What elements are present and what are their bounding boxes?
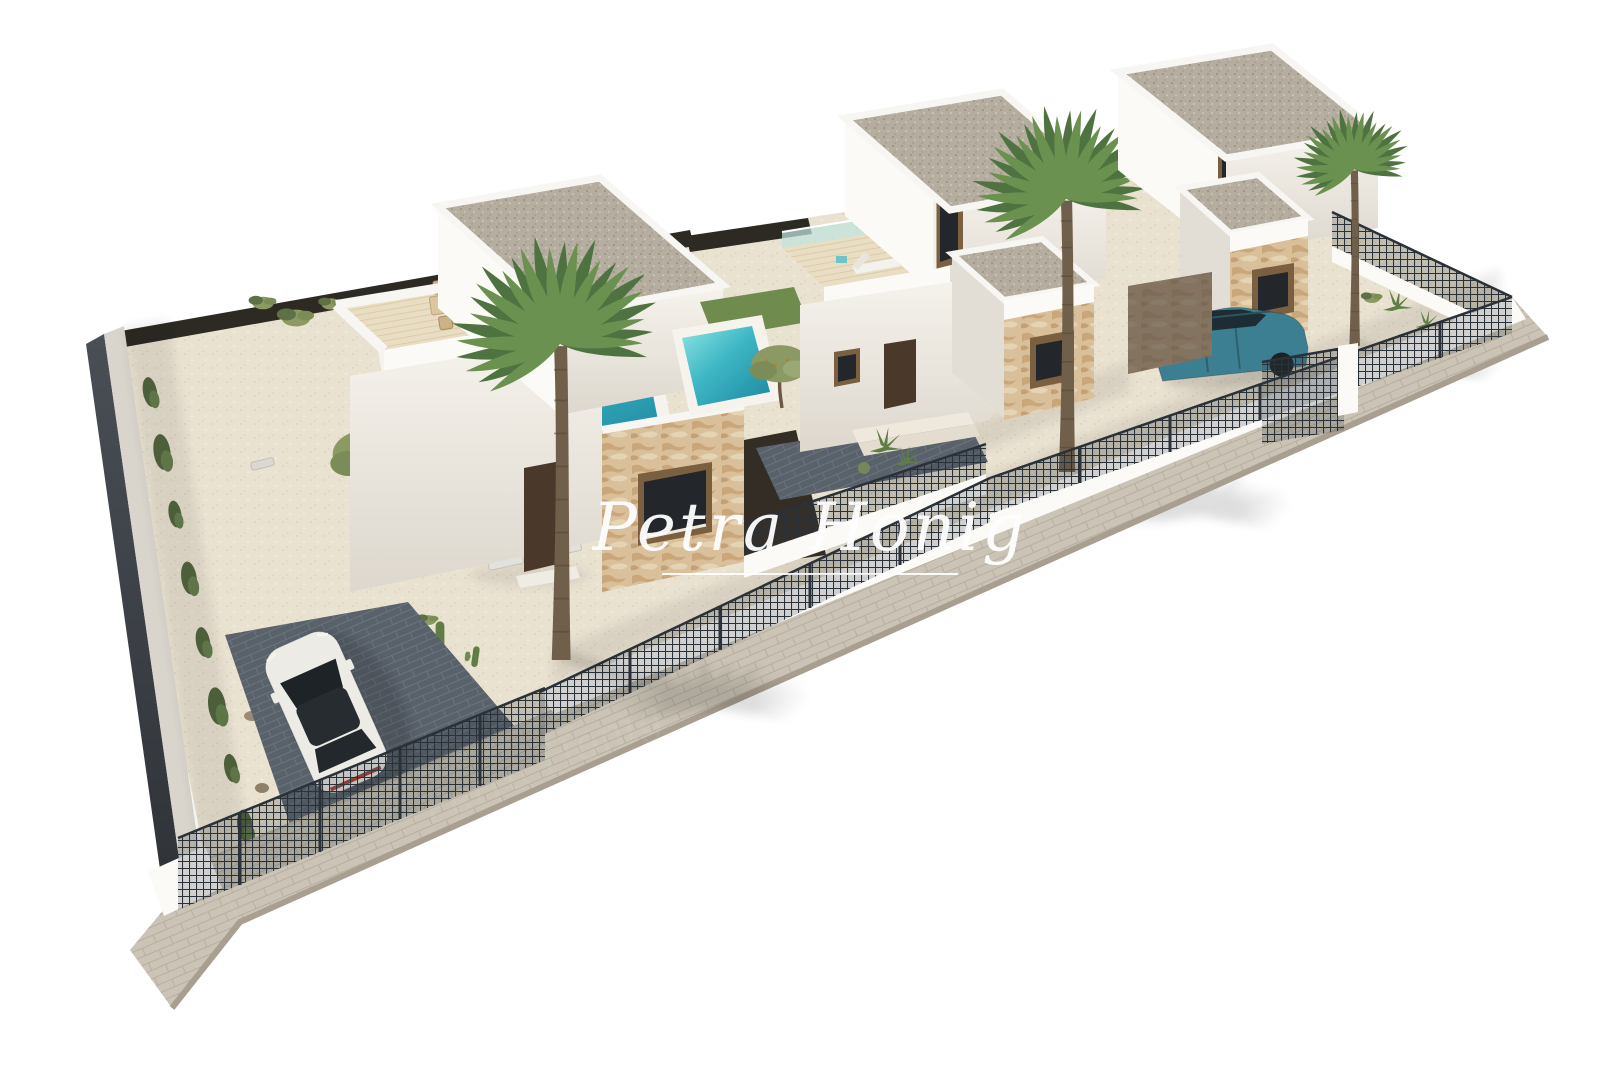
- gate-pillar: [1338, 343, 1358, 416]
- watermark: Petra Honig: [591, 489, 1027, 574]
- render-canvas: Petra Honig Petra Honig: [0, 0, 1620, 1080]
- villa-3d-render: Petra Honig Petra Honig: [0, 0, 1620, 1080]
- watermark-text: Petra Honig: [591, 489, 1027, 566]
- front-door-middle-villa: [884, 339, 916, 409]
- driveway-gate-right: [1262, 348, 1344, 444]
- window-middle-villa-small: [834, 348, 860, 387]
